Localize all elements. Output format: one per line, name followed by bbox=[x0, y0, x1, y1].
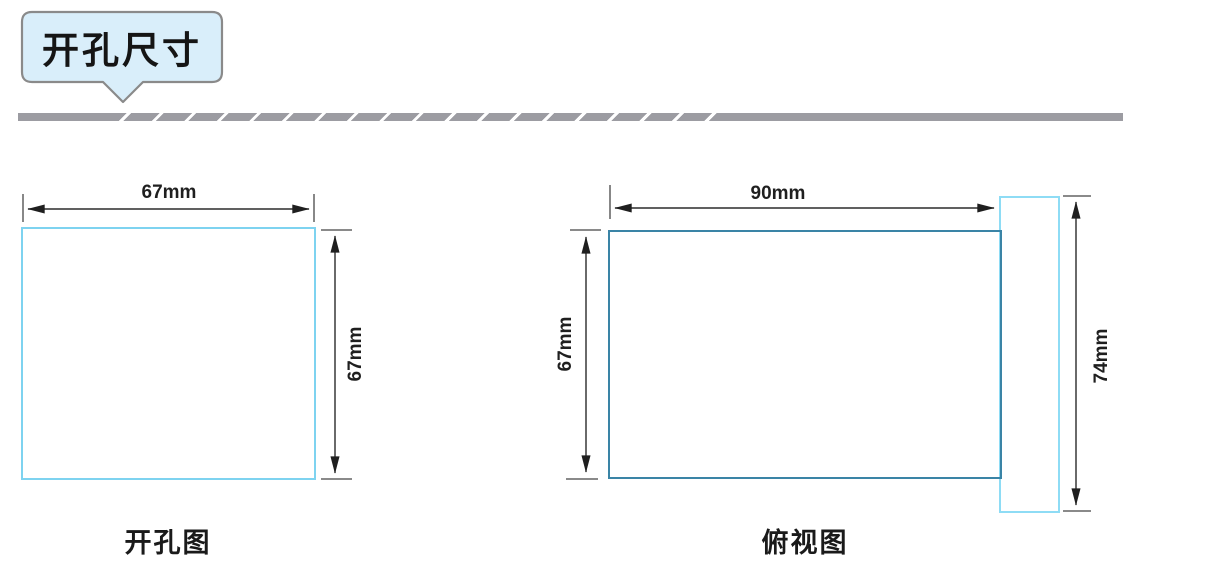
topview-diagram bbox=[566, 185, 1091, 512]
divider-segment-solid-left bbox=[18, 113, 100, 121]
panel-rectangle bbox=[609, 231, 1001, 478]
page: 开孔尺寸 bbox=[0, 0, 1227, 586]
cutout-width-label: 67mm bbox=[119, 183, 219, 203]
topview-caption: 俯视图 bbox=[705, 526, 905, 560]
topview-width-label: 90mm bbox=[728, 184, 828, 204]
page-title: 开孔尺寸 bbox=[22, 12, 222, 82]
cutout-rectangle bbox=[22, 228, 315, 479]
topview-inner-height-label: 67mm bbox=[556, 294, 576, 394]
divider-segment-slashed bbox=[100, 113, 737, 121]
divider-segment-solid-right bbox=[737, 113, 1123, 121]
section-divider bbox=[18, 113, 1123, 121]
topview-outer-height-label: 74mm bbox=[1092, 306, 1112, 406]
cutout-caption: 开孔图 bbox=[68, 526, 268, 560]
cutout-height-label: 67mm bbox=[346, 304, 366, 404]
cutout-diagram bbox=[22, 194, 352, 479]
bezel-rectangle bbox=[1000, 197, 1059, 512]
technical-drawing bbox=[0, 140, 1227, 586]
